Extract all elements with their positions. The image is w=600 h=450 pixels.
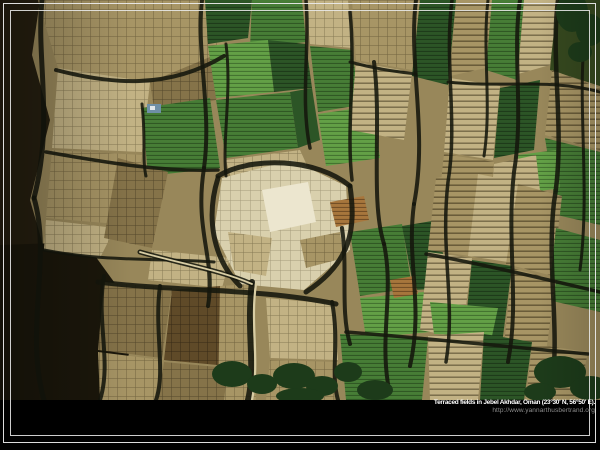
photo-caption-title: Terraced fields in Jebel Akhdar, Oman (2… xyxy=(434,400,595,406)
vignette-overlay xyxy=(0,0,600,400)
photo-caption: Terraced fields in Jebel Akhdar, Oman (2… xyxy=(434,400,595,414)
wallpaper-canvas: Terraced fields in Jebel Akhdar, Oman (2… xyxy=(0,0,600,450)
aerial-photo xyxy=(0,0,600,400)
aerial-photo-art xyxy=(0,0,600,400)
photo-caption-url: http://www.yannarthusbertrand.org xyxy=(434,408,595,414)
